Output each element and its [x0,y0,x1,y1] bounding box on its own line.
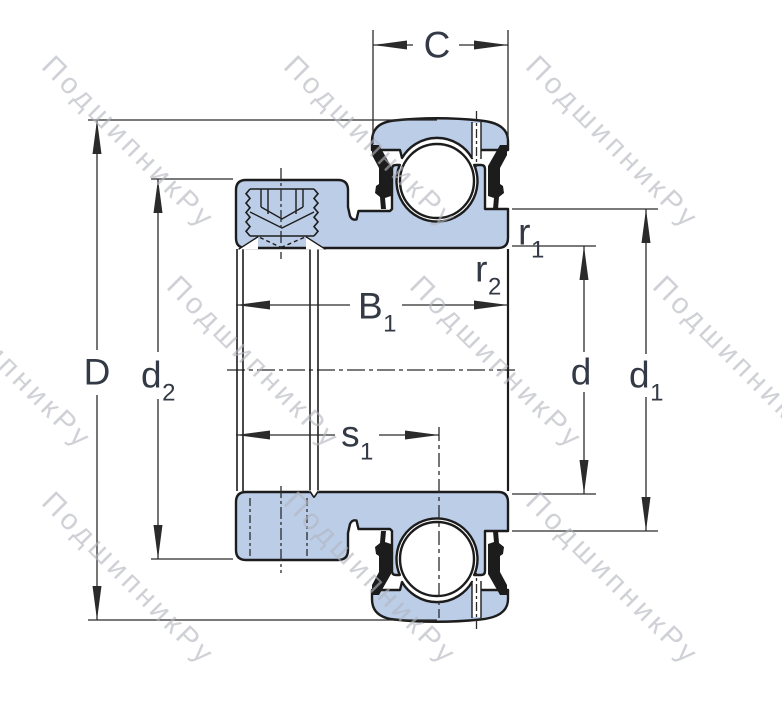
bearing-upper-half [236,111,508,371]
dim-label-d1: d1 [629,357,663,394]
bearing-lower-half [236,369,508,629]
dim-label-r2: r2 [475,251,501,288]
dim-label-B1: B1 [358,288,396,325]
dim-label-d: d [571,354,592,391]
bearing-drawing-page: C D d2 B1 s1 r1 r2 d d1 ПодшипникРу Подш… [0,0,782,704]
bearing-cross-section-diagram [0,0,782,704]
dim-label-s1: s1 [341,416,373,453]
dim-label-d2: d2 [141,357,175,394]
dim-label-C: C [424,27,451,64]
dim-label-D: D [84,354,111,391]
dim-label-r1: r1 [518,214,544,251]
